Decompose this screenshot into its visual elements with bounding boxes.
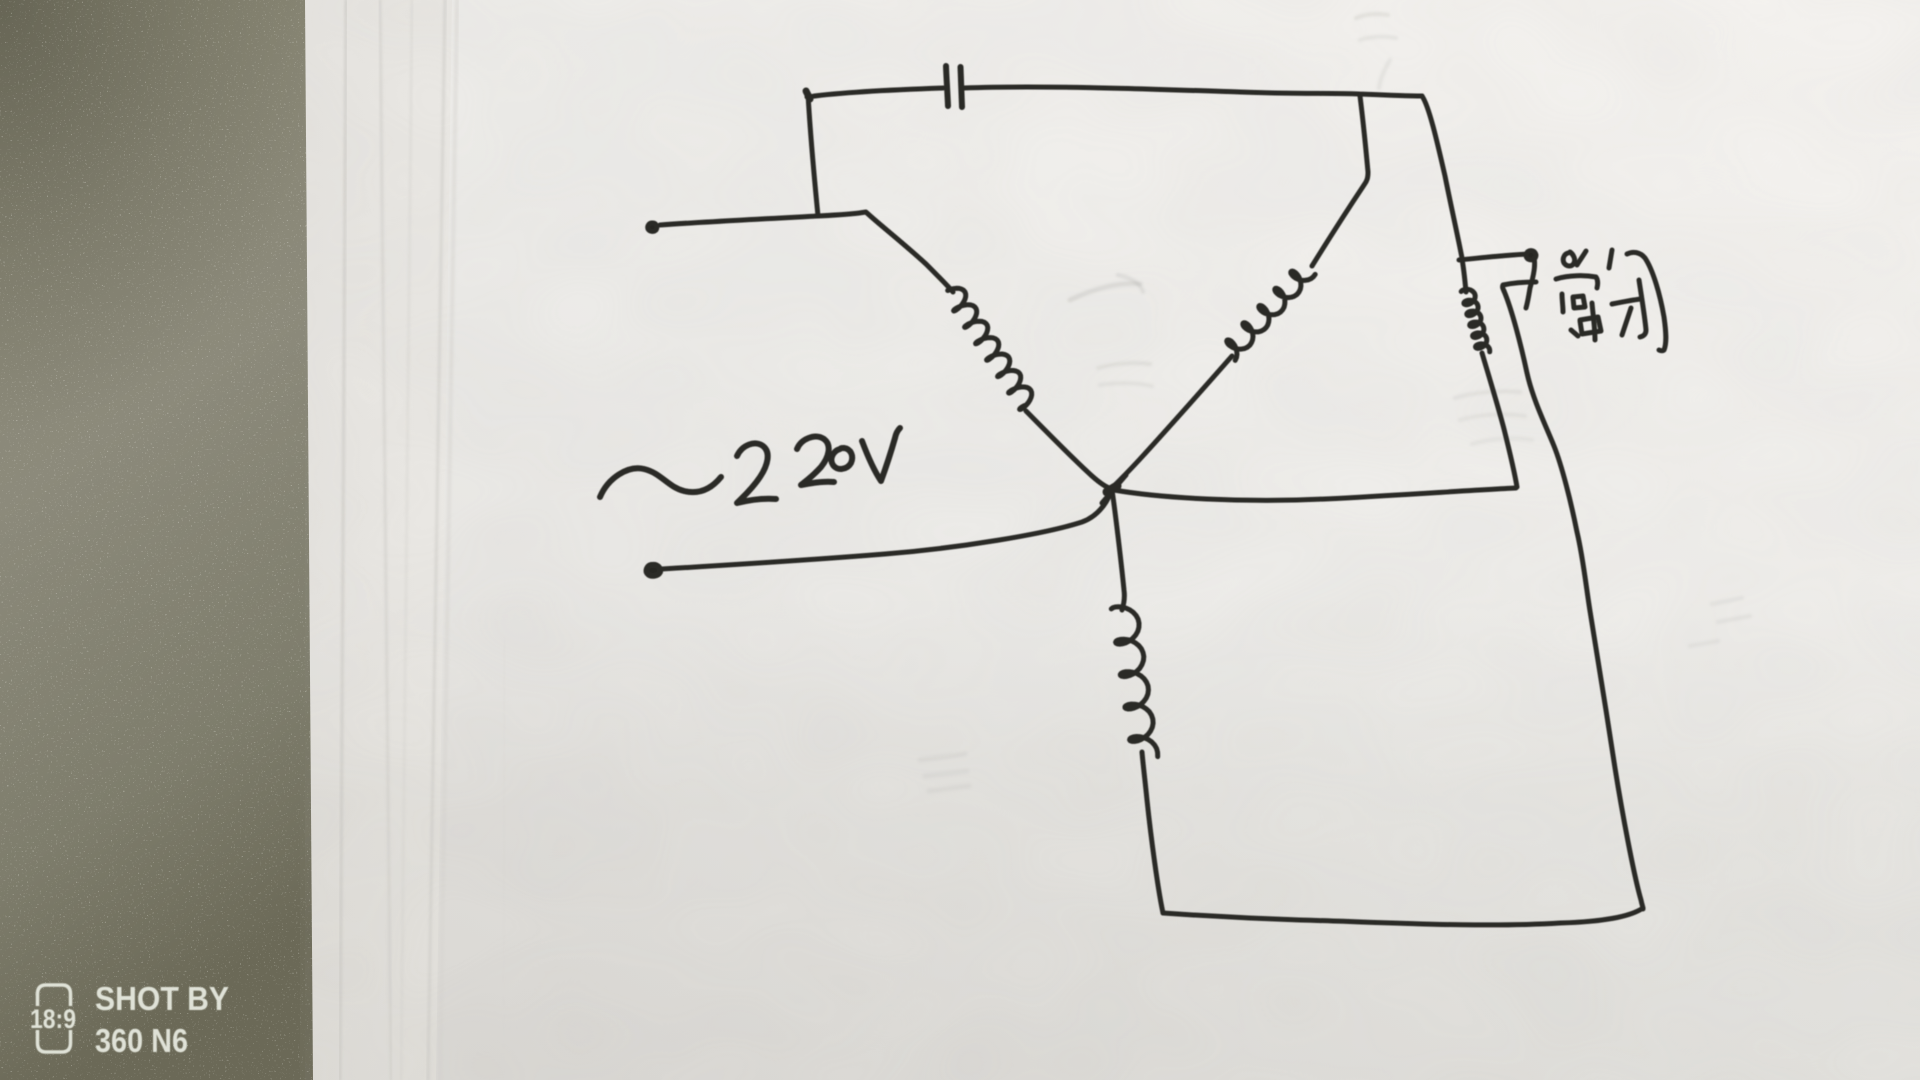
svg-text:SHOT BY: SHOT BY (95, 980, 229, 1017)
svg-text:360 N6: 360 N6 (95, 1022, 188, 1059)
svg-text:18:9: 18:9 (30, 1004, 76, 1034)
